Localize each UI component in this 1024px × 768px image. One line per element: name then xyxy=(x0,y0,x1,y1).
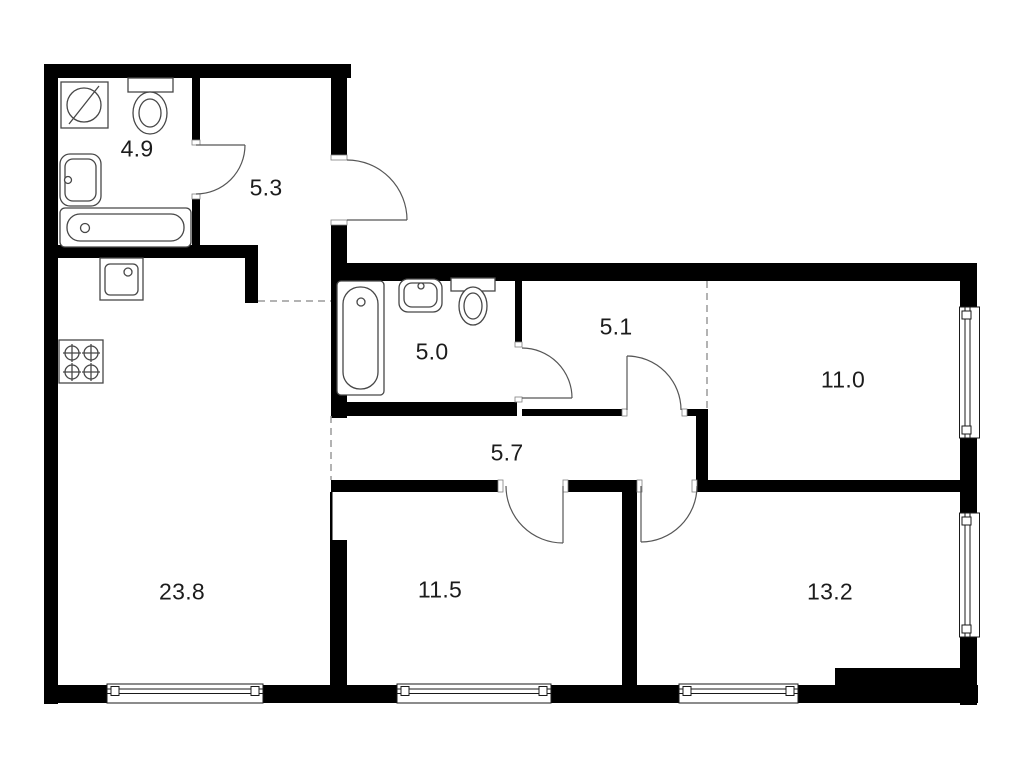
room-label-bathroom-top: 4.9 xyxy=(121,136,154,163)
wall-segment xyxy=(245,245,258,303)
wall-segment xyxy=(331,78,347,155)
wall-segment xyxy=(330,540,347,685)
window xyxy=(679,684,798,703)
room-label-hallway: 5.3 xyxy=(250,175,283,202)
door-bathroom-middle xyxy=(522,348,572,398)
kitchen-sink-icon xyxy=(100,258,143,300)
door-jamb xyxy=(515,397,522,402)
door-jamb xyxy=(563,480,568,492)
bathtub-icon-2 xyxy=(337,281,384,395)
wall-segment xyxy=(347,263,977,281)
room-label-corridor: 5.7 xyxy=(491,440,524,467)
floor-plan-drawing xyxy=(0,0,1024,768)
wall-segment xyxy=(331,480,498,492)
wall-segment xyxy=(960,281,977,307)
room-label-bathroom-middle: 5.0 xyxy=(416,339,449,366)
window xyxy=(397,684,551,703)
door-jamb xyxy=(331,220,347,225)
wall-segment xyxy=(515,281,522,342)
bathtub-icon xyxy=(60,208,191,247)
door-room-bottom-mid xyxy=(506,486,563,543)
window xyxy=(960,513,980,637)
door-jamb xyxy=(331,155,347,160)
door-bathroom-top xyxy=(196,145,245,194)
wall-segment xyxy=(687,409,708,416)
toilet-icon-2 xyxy=(451,278,495,325)
wall-segment xyxy=(44,64,351,78)
toilet-icon xyxy=(128,78,173,134)
wall-segment xyxy=(697,480,960,492)
wall-segment xyxy=(192,78,200,140)
wall-segment xyxy=(331,402,517,416)
door-hall xyxy=(627,356,681,410)
wall-segment xyxy=(622,480,637,687)
floor-plan: 4.9 5.3 5.0 5.1 11.0 5.7 23.8 11.5 13.2 xyxy=(0,0,1024,768)
door-jamb xyxy=(692,480,697,492)
sink-icon-2 xyxy=(399,279,442,312)
wall-segment xyxy=(44,64,58,704)
door-entrance xyxy=(347,160,407,220)
room-label-room-right-top: 11.0 xyxy=(821,367,865,394)
wall-segment xyxy=(563,480,622,492)
stove-icon xyxy=(59,340,103,383)
wall-segment xyxy=(696,416,708,488)
door-jamb xyxy=(192,194,200,199)
room-label-room-bottom-mid: 11.5 xyxy=(418,577,462,604)
door-jamb xyxy=(622,409,627,416)
door-jamb xyxy=(498,480,503,492)
room-label-room-bottom-right: 13.2 xyxy=(807,579,853,606)
room-label-kitchen-living: 23.8 xyxy=(159,579,205,606)
wall-segment xyxy=(960,438,977,513)
window xyxy=(107,684,263,703)
wall-segment xyxy=(835,668,960,685)
washing-machine-icon xyxy=(61,82,108,128)
door-room-bottom-right xyxy=(641,486,697,542)
sink-icon xyxy=(60,154,101,206)
door-jamb xyxy=(682,409,687,416)
door-jamb xyxy=(192,140,200,145)
door-jamb xyxy=(515,342,522,347)
wall-segment xyxy=(522,409,622,416)
room-label-hall: 5.1 xyxy=(600,314,633,341)
window xyxy=(960,307,980,438)
wall-segment xyxy=(330,492,333,542)
